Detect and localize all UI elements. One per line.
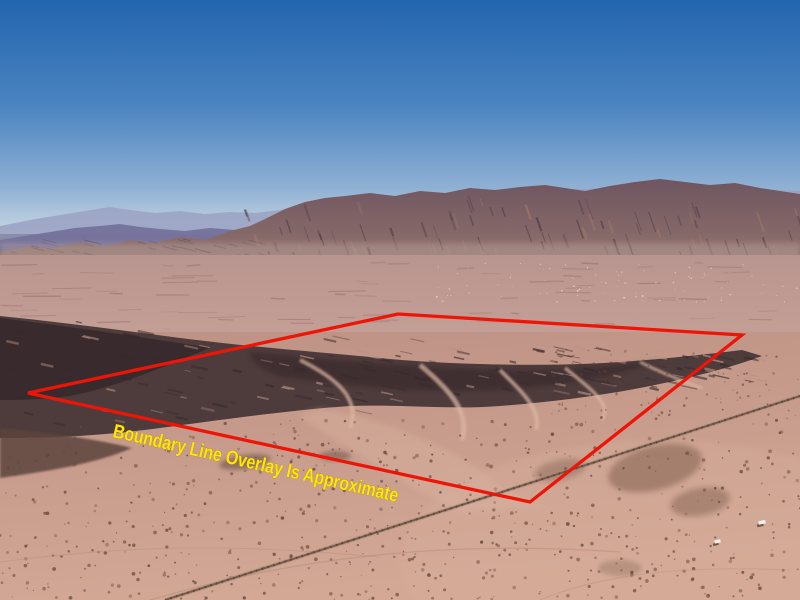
landscape-scene: Boundary Line Overlay Is Approximate bbox=[0, 0, 800, 600]
aerial-photo: Boundary Line Overlay Is Approximate bbox=[0, 0, 800, 600]
